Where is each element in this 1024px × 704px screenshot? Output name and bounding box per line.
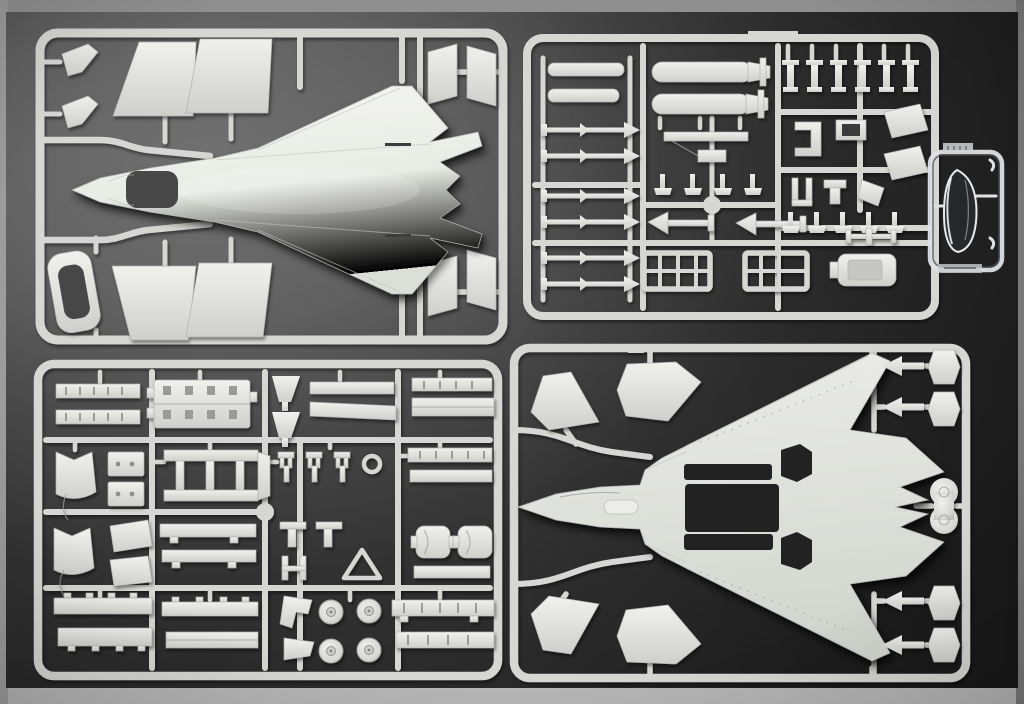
- photo-vignette: [0, 0, 1024, 704]
- model-kit-sprues-photo: [0, 0, 1024, 704]
- photo-canvas: [0, 0, 1024, 704]
